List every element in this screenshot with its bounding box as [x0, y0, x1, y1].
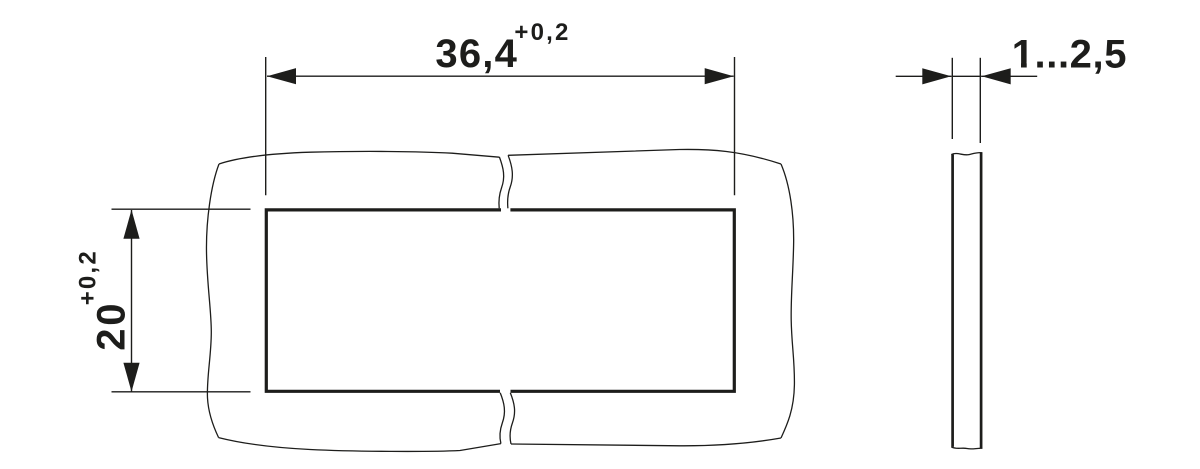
svg-text:36,4: 36,4 [435, 32, 518, 76]
svg-text:+0,2: +0,2 [514, 19, 570, 46]
svg-text:20: 20 [90, 301, 134, 351]
svg-text:1...2,5: 1...2,5 [1012, 32, 1127, 76]
svg-text:+0,2: +0,2 [75, 249, 102, 305]
